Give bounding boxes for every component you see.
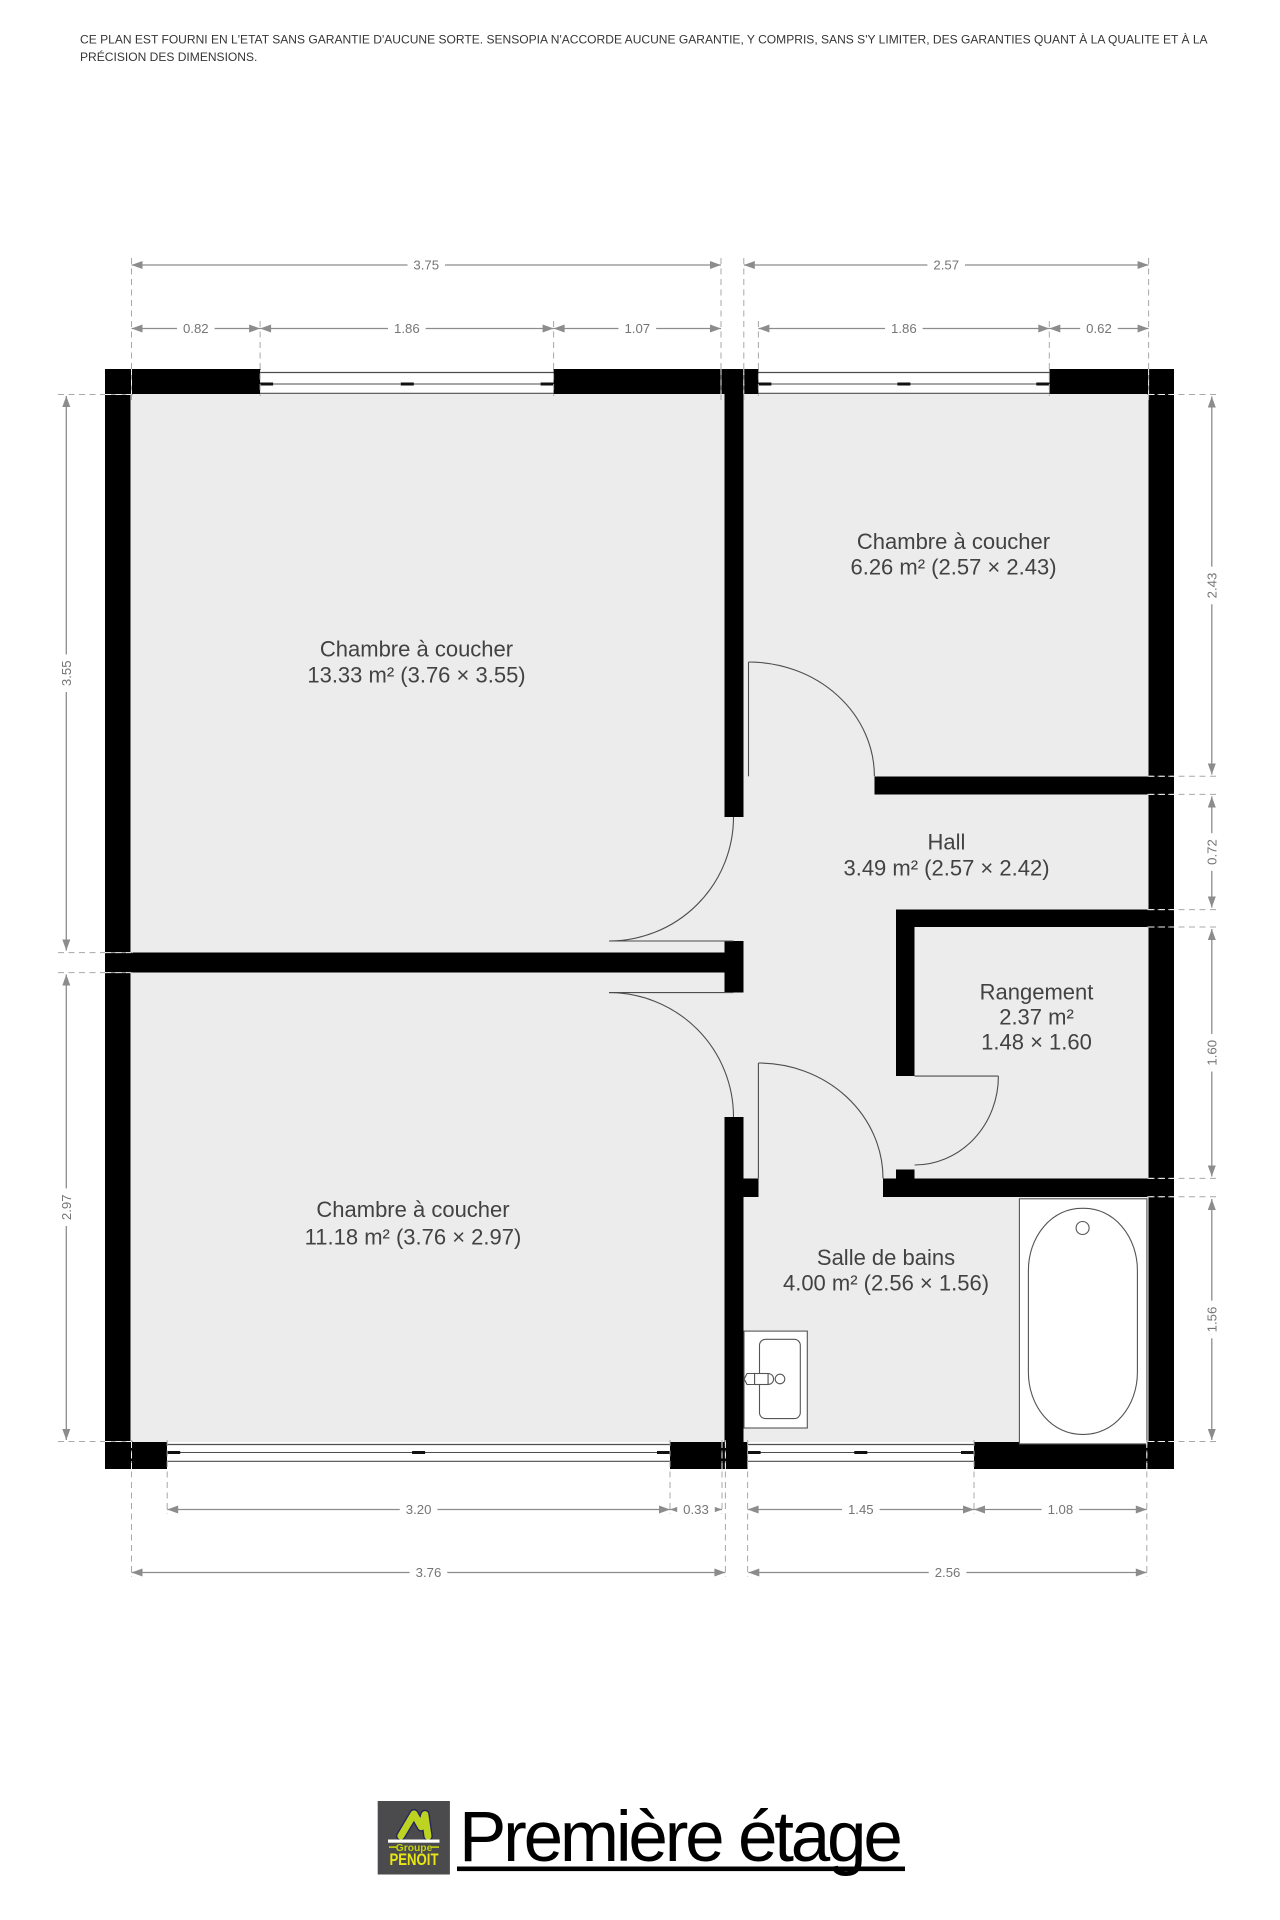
svg-text:Première étage: Première étage	[459, 1798, 900, 1877]
svg-text:13.33 m² (3.76 × 3.55): 13.33 m² (3.76 × 3.55)	[307, 663, 525, 688]
svg-text:4.00 m² (2.56 × 1.56): 4.00 m² (2.56 × 1.56)	[783, 1271, 989, 1296]
svg-text:0.62: 0.62	[1086, 321, 1112, 336]
svg-text:2.57: 2.57	[933, 258, 959, 273]
svg-text:1.56: 1.56	[1204, 1307, 1219, 1333]
svg-text:Hall: Hall	[928, 830, 966, 855]
svg-text:3.49 m² (2.57 × 2.42): 3.49 m² (2.57 × 2.42)	[843, 856, 1049, 881]
svg-text:0.82: 0.82	[183, 321, 209, 336]
svg-text:PENOIT: PENOIT	[390, 1850, 439, 1869]
svg-text:Rangement: Rangement	[980, 979, 1094, 1004]
svg-text:1.86: 1.86	[394, 321, 420, 336]
svg-text:0.33: 0.33	[683, 1502, 709, 1517]
svg-text:1.48 × 1.60: 1.48 × 1.60	[981, 1030, 1092, 1055]
svg-text:3.55: 3.55	[59, 660, 74, 686]
svg-text:2.37 m²: 2.37 m²	[999, 1005, 1074, 1030]
svg-text:2.97: 2.97	[59, 1194, 74, 1220]
svg-text:Chambre à coucher: Chambre à coucher	[320, 637, 513, 662]
svg-text:1.07: 1.07	[624, 321, 650, 336]
svg-text:Chambre à coucher: Chambre à coucher	[316, 1197, 509, 1222]
svg-text:1.45: 1.45	[848, 1502, 874, 1517]
svg-text:CE PLAN EST FOURNI EN L'ETAT S: CE PLAN EST FOURNI EN L'ETAT SANS GARANT…	[80, 32, 1209, 47]
svg-text:6.26 m² (2.57 × 2.43): 6.26 m² (2.57 × 2.43)	[850, 555, 1056, 580]
svg-text:2.56: 2.56	[935, 1565, 961, 1580]
svg-text:PRÉCISION DES DIMENSIONS.: PRÉCISION DES DIMENSIONS.	[80, 49, 257, 64]
svg-text:3.75: 3.75	[413, 258, 439, 273]
svg-text:Chambre à coucher: Chambre à coucher	[857, 529, 1050, 554]
svg-text:1.60: 1.60	[1204, 1040, 1219, 1066]
svg-text:3.20: 3.20	[406, 1502, 432, 1517]
svg-text:0.72: 0.72	[1204, 839, 1219, 865]
svg-text:11.18 m² (3.76 × 2.97): 11.18 m² (3.76 × 2.97)	[305, 1225, 522, 1250]
svg-text:3.76: 3.76	[416, 1565, 442, 1580]
svg-text:1.86: 1.86	[891, 321, 917, 336]
svg-text:Salle de bains: Salle de bains	[817, 1245, 955, 1270]
svg-text:2.43: 2.43	[1204, 573, 1219, 599]
svg-text:1.08: 1.08	[1048, 1502, 1074, 1517]
